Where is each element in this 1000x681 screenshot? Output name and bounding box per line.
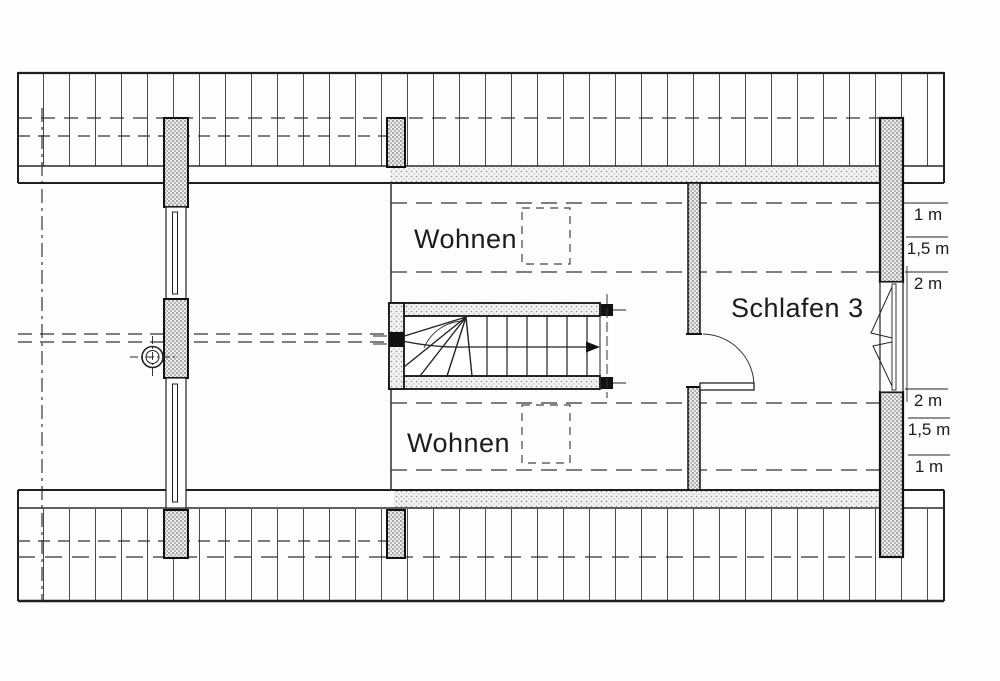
roof-window-outline-bottom (522, 405, 570, 463)
wall-pier (164, 118, 188, 207)
staircase (373, 294, 626, 398)
wall-pier (164, 510, 188, 558)
door-leaf (700, 383, 754, 390)
room-label-wohnen-top: Wohnen (414, 224, 517, 255)
height-marker-1m-upper: 1 m (905, 205, 951, 225)
wall-stub-top (387, 118, 405, 167)
wall-segment (880, 118, 903, 282)
height-marker-1-5m-lower: 1,5 m (906, 420, 952, 440)
plan-linework (0, 0, 1000, 681)
wall-stub-bottom (387, 510, 405, 558)
roof-slope-top (18, 72, 944, 183)
stair-wall-top (389, 303, 600, 316)
window-left-2 (166, 378, 186, 508)
stair-wall-bottom (389, 376, 600, 389)
door-schlafen (700, 334, 754, 390)
height-marker-1-5m-upper: 1,5 m (905, 239, 951, 259)
ridge-lines (18, 334, 391, 342)
knee-wall-top (18, 167, 944, 183)
roof-window-outline-top (522, 208, 570, 264)
knee-wall-bottom (18, 490, 944, 507)
interior-wall-schlafen (686, 183, 702, 490)
window-right (871, 282, 903, 392)
left-window-wall (164, 118, 188, 558)
height-marker-2m-lower: 2 m (905, 391, 951, 411)
height-marker-2m-upper: 2 m (905, 274, 951, 294)
room-label-wohnen-bottom: Wohnen (407, 428, 510, 459)
stair-entry-marker (389, 332, 404, 347)
wall-pier (164, 299, 188, 378)
room-label-schlafen-3: Schlafen 3 (731, 293, 864, 324)
floor-plan-attic: Wohnen Wohnen Schlafen 3 1 m 1,5 m 2 m 2… (0, 0, 1000, 681)
window-left-1 (166, 207, 186, 299)
height-marker-1m-lower: 1 m (906, 457, 952, 477)
wall-segment (880, 392, 903, 557)
